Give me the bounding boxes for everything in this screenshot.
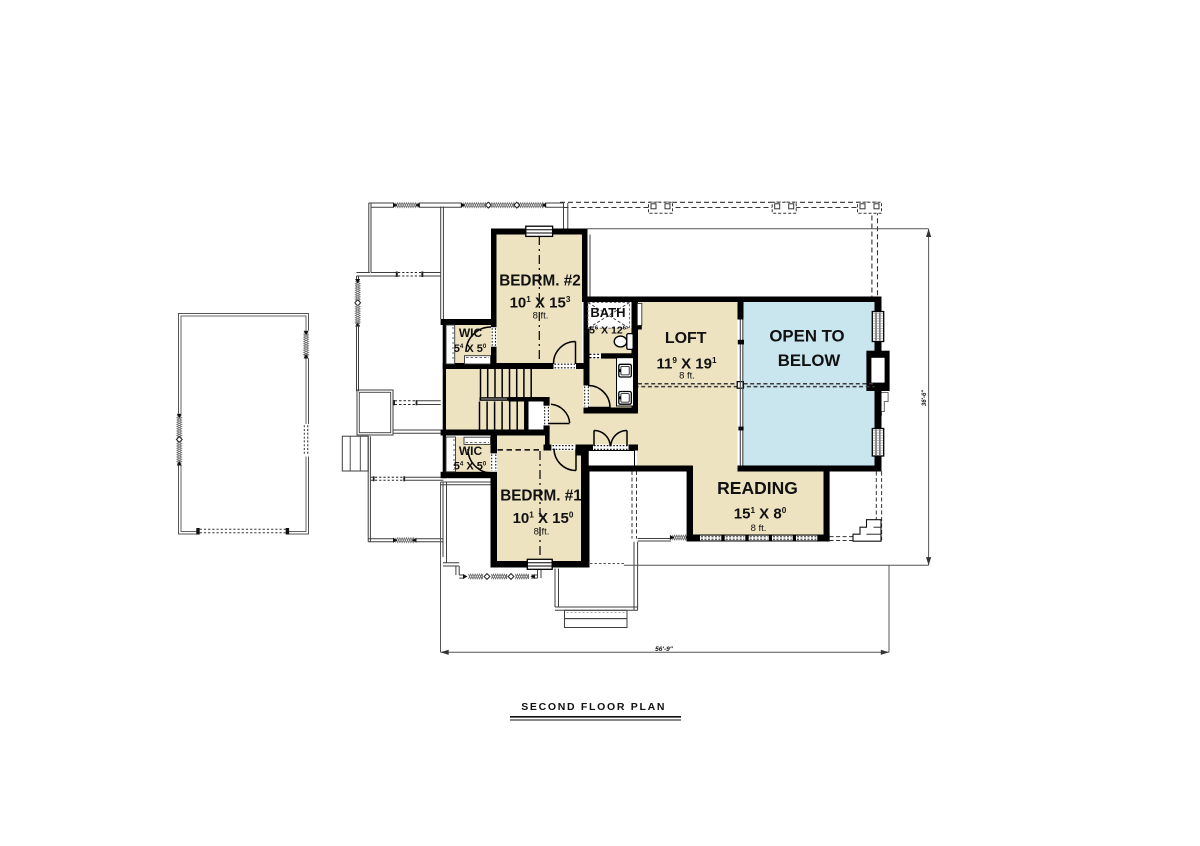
- svg-text:BEDRM. #1: BEDRM. #1: [500, 488, 582, 505]
- svg-text:56 X 126: 56 X 126: [589, 325, 627, 337]
- svg-text:LOFT: LOFT: [665, 330, 707, 347]
- svg-text:WIC: WIC: [459, 444, 483, 458]
- svg-text:54 X 50: 54 X 50: [454, 343, 487, 355]
- svg-text:8 ft.: 8 ft.: [533, 311, 549, 322]
- svg-text:WIC: WIC: [459, 326, 483, 340]
- svg-text:SECOND FLOOR PLAN: SECOND FLOOR PLAN: [521, 701, 666, 713]
- svg-text:36'-6": 36'-6": [922, 390, 928, 406]
- svg-text:8 ft.: 8 ft.: [679, 371, 695, 382]
- svg-text:BATH: BATH: [590, 305, 625, 320]
- svg-text:56'-9": 56'-9": [655, 646, 674, 653]
- svg-text:54 X 50: 54 X 50: [454, 460, 487, 472]
- svg-text:8 ft.: 8 ft.: [751, 523, 767, 534]
- svg-text:151 X 80: 151 X 80: [734, 506, 787, 523]
- svg-text:101 X 150: 101 X 150: [513, 510, 574, 527]
- svg-text:8 ft.: 8 ft.: [534, 527, 550, 538]
- svg-text:101 X 153: 101 X 153: [510, 295, 571, 312]
- svg-text:READING: READING: [717, 478, 798, 498]
- svg-text:BEDRM. #2: BEDRM. #2: [499, 273, 581, 290]
- svg-text:OPEN TO: OPEN TO: [769, 327, 844, 346]
- svg-text:BELOW: BELOW: [778, 351, 841, 370]
